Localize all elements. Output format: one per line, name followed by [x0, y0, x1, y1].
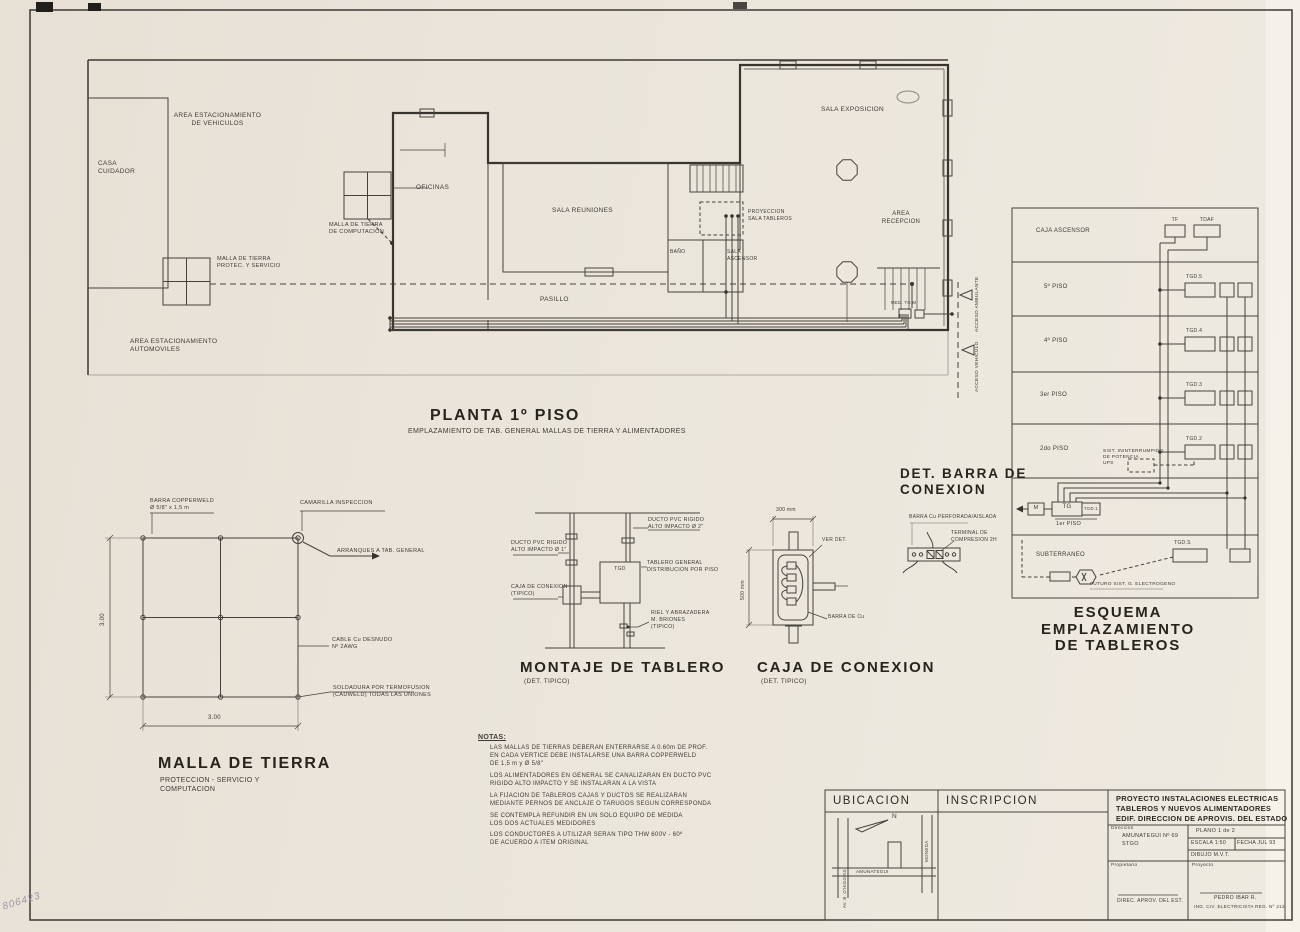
label-bano: BAÑO	[670, 249, 685, 256]
titleblock-propietario-value: DIREC. APROV. DEL EST.	[1117, 898, 1183, 905]
north-label: N	[892, 813, 897, 821]
label-malla-computacion: MALLA DE TIERRA DE COMPUTACION	[329, 222, 384, 237]
label-tablero-general: TABLERO GENERAL DISTRIBUCION POR PISO	[647, 560, 718, 574]
titleblock-proyecto-title: ING. CIV. ELECTRICISTA REG. Nº 212	[1194, 904, 1285, 910]
esquema-box-tgd4: TGD.4	[1186, 328, 1202, 335]
label-cable: CABLE Cu DESNUDO Nº 2AWG	[332, 637, 392, 651]
esquema-ups-note: SIST. ININTERRUMPIDO DE POTENCIA UPS	[1103, 449, 1164, 468]
esquema-floor-1: 1er PISO	[1056, 521, 1081, 528]
esquema-box-tf: TF	[1165, 217, 1185, 224]
street-amunategui: AMUNATEGUI	[856, 869, 889, 875]
label-soldadura: SOLDADURA POR TERMOFUSION (CADWELD) TODA…	[333, 685, 431, 699]
label-terminal: TERMINAL DE COMPRESION 2H	[951, 530, 997, 543]
malla-dim-height: 3.00	[100, 613, 108, 626]
notas-title: NOTAS:	[478, 733, 506, 742]
drawing-sheet: AREA ESTACIONAMIENTO DE VEHICULOS CASA C…	[0, 0, 1300, 932]
malla-title: MALLA DE TIERRA	[158, 755, 331, 773]
label-acceso-ambulante: ACCESO AMBULANTE	[975, 270, 981, 332]
esquema-floor-sub: SUBTERRANEO	[1036, 552, 1085, 560]
esquema-box-tgd1: TGD.1	[1082, 506, 1100, 511]
esquema-futuro-note: FUTURO SIST. G. ELECTROGENO	[1090, 582, 1175, 588]
ubicacion-box-linework	[825, 790, 1108, 920]
caja-dim-width: 300 mm	[776, 507, 796, 514]
esquema-box-tgds: TGD.S	[1174, 540, 1191, 547]
label-casa-cuidador: CASA CUIDADOR	[98, 160, 135, 177]
nota-item: LOS ALIMENTADORES EN GENERAL SE CANALIZA…	[490, 772, 711, 788]
label-sala-ascensor: SALA ASCENSOR	[727, 249, 757, 262]
label-tgd: TGD	[600, 566, 640, 573]
esquema-floor-3: 3er PISO	[1040, 392, 1067, 400]
label-area-automoviles: AREA ESTACIONAMIENTO AUTOMOVILES	[130, 338, 217, 355]
label-acceso-vehiculo: ACCESO VEHICULO	[975, 334, 981, 392]
nota-item: LAS MALLAS DE TIERRAS DEBERAN ENTERRARSE…	[490, 744, 707, 768]
label-area-vehiculos: AREA ESTACIONAMIENTO DE VEHICULOS	[155, 112, 280, 129]
titleblock-proyecto-name: PEDRO IBAR R.	[1214, 895, 1257, 902]
malla-dim-width: 3.00	[208, 715, 221, 723]
label-barra-perforada: BARRA Cu PERFORADA/AISLADA	[909, 514, 997, 521]
esquema-box-tdaf: TDAF	[1194, 217, 1220, 224]
label-malla-servicio: MALLA DE TIERRA PROTEC. Y SERVICIO	[217, 256, 281, 271]
ubicacion-title: UBICACION	[833, 794, 910, 809]
esquema-floor-4: 4º PISO	[1044, 338, 1068, 346]
nota-item: LA FIJACION DE TABLEROS CAJAS Y DUCTOS S…	[490, 792, 711, 808]
titleblock-propietario-label: Propietario	[1111, 863, 1138, 869]
esquema-linework	[1012, 208, 1258, 598]
esquema-floor-2: 2do PISO	[1040, 446, 1068, 454]
montaje-subtitle: (DET. TIPICO)	[524, 678, 570, 686]
inscripcion-title: INSCRIPCION	[946, 794, 1038, 809]
titleblock-fecha: FECHA JUL 93	[1237, 840, 1276, 847]
street-moneda: MONEDA	[924, 827, 930, 862]
label-riel: RIEL Y ABRAZADERA M. BRIONES (TIPICO)	[651, 610, 710, 631]
caja-dim-height: 500 mm	[740, 580, 747, 600]
titleblock-proyecto-label: Proyecto	[1192, 863, 1213, 869]
caja-detail-linework	[746, 516, 848, 643]
plan-title: PLANTA 1º PISO	[430, 407, 580, 425]
malla-computacion-symbol	[344, 172, 391, 219]
esquema-floor-caja-ascensor: CAJA ASCENSOR	[1036, 228, 1090, 236]
caja-title: CAJA DE CONEXION	[757, 659, 935, 676]
malla-subtitle: PROTECCION - SERVICIO Y COMPUTACION	[160, 776, 260, 794]
label-sala-reuniones: SALA REUNIONES	[525, 207, 640, 215]
label-caja-conexion: CAJA DE CONEXION (TIPICO)	[511, 584, 568, 598]
label-ver-det: VER DET.	[822, 537, 847, 544]
label-sala-exposicion: SALA EXPOSICION	[795, 106, 910, 114]
street-ohiggins: AV. B. O'HIGGINS	[842, 838, 847, 908]
titleblock-plano: PLANO 1 de 2	[1196, 828, 1235, 835]
label-area-recepcion: AREA RECEPCION	[876, 211, 926, 227]
esquema-box-tg: TG	[1052, 504, 1082, 512]
label-ducto-2: DUCTO PVC RIGIDO ALTO IMPACTO Ø 2"	[648, 517, 704, 531]
nota-item: SE CONTEMPLA REFUNDIR EN UN SOLO EQUIPO …	[490, 812, 683, 828]
titleblock-direccion-value: AMUNATEGUI Nº 69 STGO	[1122, 833, 1178, 848]
esquema-box-m: M	[1028, 505, 1044, 512]
caja-subtitle: (DET. TIPICO)	[761, 678, 807, 686]
titleblock-escala: ESCALA 1:50	[1191, 840, 1226, 847]
label-arranques: ARRANQUES A TAB. GENERAL	[337, 548, 425, 555]
label-barra-copperweld: BARRA COPPERWELD Ø 5/8" x 1,5 m	[150, 498, 214, 512]
esquema-box-tgd5: TGD.5	[1186, 274, 1202, 281]
label-camarilla: CAMARILLA INSPECCION	[300, 500, 373, 507]
label-pasillo: PASILLO	[540, 296, 569, 304]
esquema-box-tgd2: TGD.2	[1186, 436, 1202, 443]
nota-item: LOS CONDUCTORES A UTILIZAR SERAN TIPO TH…	[490, 831, 683, 847]
esquema-box-tgd3: TGD.3	[1186, 382, 1202, 389]
label-ducto-1: DUCTO PVC RIGIDO ALTO IMPACTO Ø 1"	[511, 540, 567, 554]
label-proyeccion: PROYECCION SALA TABLEROS	[748, 209, 792, 222]
label-medidor: MED. TG M	[891, 300, 916, 306]
titleblock-direccion-label: Direccion	[1111, 826, 1134, 832]
barra-detail-title: DET. BARRA DE CONEXION	[900, 466, 1027, 497]
plan-subtitle: EMPLAZAMIENTO DE TAB. GENERAL MALLAS DE …	[408, 427, 686, 436]
titleblock-project: PROYECTO INSTALACIONES ELECTRICAS TABLER…	[1116, 794, 1287, 825]
titleblock-dibujo: DIBUJO M.V.T.	[1191, 852, 1230, 859]
esquema-floor-5: 5º PISO	[1044, 284, 1068, 292]
esquema-title: ESQUEMA EMPLAZAMIENTO DE TABLEROS	[1028, 605, 1208, 655]
label-oficinas: OFICINAS	[416, 184, 449, 192]
montaje-title: MONTAJE DE TABLERO	[520, 659, 725, 676]
label-barra-cu: BARRA DE Cu	[828, 614, 864, 621]
malla-servicio-symbol	[163, 258, 210, 305]
